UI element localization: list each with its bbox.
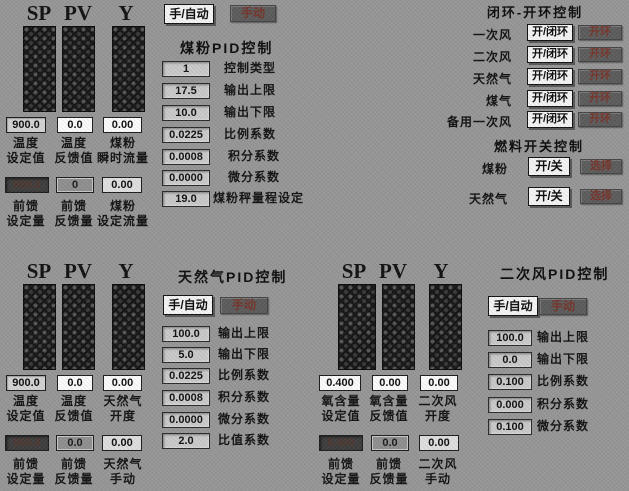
coal-pid-panel: 手/自动 手动 煤粉PID控制 1 控制类型 17.5 输出上限 10.0 输出… xyxy=(150,0,325,240)
coal-bars-panel: SP PV Y 900.0 0.0 0.00 温度 设定值 温度 反馈值 煤粉 … xyxy=(0,0,155,240)
sp-bar-graph xyxy=(23,284,56,370)
air-manual-button[interactable]: 手动 xyxy=(539,298,587,315)
hmi-screen: SP PV Y 900.0 0.0 0.00 温度 设定值 温度 反馈值 煤粉 … xyxy=(0,0,629,491)
gas-opening-field[interactable]: 0.00 xyxy=(103,375,142,391)
ratio-coeff-label: 比值系数 xyxy=(218,433,270,448)
y-bar-graph xyxy=(429,284,462,370)
derivative-coeff-label: 微分系数 xyxy=(228,170,280,185)
o2-bars-panel: SP PV Y 0.400 0.00 0.00 氧含量 设定值 氧含量 反馈值 … xyxy=(315,258,470,491)
natural-gas-loop-toggle-button[interactable]: 开/闭环 xyxy=(527,68,573,85)
feedforward-setpoint-label: 前馈 设定量 xyxy=(315,457,367,487)
label-line: 手动 xyxy=(411,472,465,487)
feedforward-feedback-field[interactable]: 0.0 xyxy=(371,435,409,451)
label-line: 反馈量 xyxy=(50,472,98,487)
air-opening-label: 二次风 开度 xyxy=(411,394,465,424)
output-upper-limit-label: 输出上限 xyxy=(537,330,589,345)
label-line: 前馈 xyxy=(50,457,98,472)
integral-coeff-field[interactable]: 0.0008 xyxy=(162,390,210,406)
output-lower-limit-label: 输出下限 xyxy=(537,352,589,367)
gas-manual-field[interactable]: 0.00 xyxy=(102,435,142,451)
label-line: 设定量 xyxy=(315,472,367,487)
temp-feedback-label: 温度 反馈值 xyxy=(50,394,98,424)
pv-column-header: PV xyxy=(53,2,103,24)
temp-feedback-field[interactable]: 0.0 xyxy=(57,375,93,391)
derivative-coeff-field[interactable]: 0.0000 xyxy=(162,412,210,428)
temp-setpoint-label: 温度 设定值 xyxy=(0,136,52,166)
pv-bar-graph xyxy=(62,284,95,370)
feedforward-feedback-label: 前馈 反馈量 xyxy=(365,457,413,487)
ratio-coeff-field[interactable]: 2.0 xyxy=(162,433,210,449)
air-manual-label: 二次风 手动 xyxy=(411,457,465,487)
coal-manual-button[interactable]: 手动 xyxy=(230,5,276,22)
derivative-coeff-field[interactable]: 0.0000 xyxy=(162,170,210,186)
label-line: 设定值 xyxy=(0,151,52,166)
label-line: 前馈 xyxy=(0,199,52,214)
secondary-air-loop-toggle-button[interactable]: 开/闭环 xyxy=(527,46,573,63)
label-line: 前馈 xyxy=(315,457,367,472)
temp-setpoint-field[interactable]: 900.0 xyxy=(6,117,46,133)
loop-row-label-primary-air: 一次风 xyxy=(440,26,512,43)
integral-coeff-label: 积分系数 xyxy=(228,149,280,164)
primary-air-open-loop-button[interactable]: 开环 xyxy=(578,25,622,40)
proportional-coeff-label: 比例系数 xyxy=(218,368,270,383)
label-line: 开度 xyxy=(94,409,152,424)
integral-coeff-field[interactable]: 0.000 xyxy=(488,397,532,413)
gas-pid-title: 天然气PID控制 xyxy=(178,267,287,287)
label-line: 温度 xyxy=(50,136,98,151)
sp-bar-graph xyxy=(23,26,56,112)
label-line: 反馈量 xyxy=(365,472,413,487)
coal-scale-range-label: 煤粉秤量程设定 xyxy=(213,191,304,206)
loop-row-label-secondary-air: 二次风 xyxy=(440,48,512,65)
feedforward-setpoint-label: 前馈 设定量 xyxy=(0,199,52,229)
label-line: 瞬时流量 xyxy=(94,151,152,166)
proportional-coeff-field[interactable]: 0.100 xyxy=(488,374,532,390)
derivative-coeff-label: 微分系数 xyxy=(218,412,270,427)
label-line: 设定流量 xyxy=(94,214,152,229)
gas-pid-panel: 天然气PID控制 手/自动 手动 100.0 输出上限 5.0 输出下限 0.0… xyxy=(150,255,325,491)
integral-coeff-label: 积分系数 xyxy=(537,397,589,412)
proportional-coeff-field[interactable]: 0.0225 xyxy=(162,368,210,384)
o2-feedback-label: 氧含量 反馈值 xyxy=(365,394,413,424)
natural-gas-on-off-button[interactable]: 开/关 xyxy=(528,187,570,206)
label-line: 温度 xyxy=(50,394,98,409)
feedforward-feedback-label: 前馈 反馈量 xyxy=(50,199,98,229)
label-line: 反馈量 xyxy=(50,214,98,229)
coal-setflow-label: 煤粉 设定流量 xyxy=(94,199,152,229)
pv-bar-graph xyxy=(62,26,95,112)
o2-setpoint-field[interactable]: 0.400 xyxy=(319,375,361,391)
pv-column-header: PV xyxy=(53,260,103,282)
proportional-coeff-label: 比例系数 xyxy=(224,127,276,142)
label-line: 前馈 xyxy=(0,457,52,472)
temp-setpoint-label: 温度 设定值 xyxy=(0,394,52,424)
fuel-switch-panel: 燃料开关控制 煤粉 开/关 选择 天然气 开/关 选择 xyxy=(440,135,629,215)
label-line: 二次风 xyxy=(411,394,465,409)
gas-opening-label: 天然气 开度 xyxy=(94,394,152,424)
label-line: 反馈值 xyxy=(50,151,98,166)
primary-air-loop-toggle-button[interactable]: 开/闭环 xyxy=(527,24,573,41)
y-bar-graph xyxy=(112,284,145,370)
temp-setpoint-field[interactable]: 900.0 xyxy=(6,375,46,391)
label-line: 反馈值 xyxy=(50,409,98,424)
loop-row-label-natural-gas: 天然气 xyxy=(440,70,512,87)
output-upper-limit-label: 输出上限 xyxy=(224,83,276,98)
feedforward-setpoint-label: 前馈 设定量 xyxy=(0,457,52,487)
y-column-header: Y xyxy=(415,260,467,282)
coal-pid-title: 煤粉PID控制 xyxy=(180,38,273,58)
loop-row-label-coal-gas: 煤气 xyxy=(440,92,512,109)
o2-feedback-field[interactable]: 0.00 xyxy=(372,375,408,391)
y-column-header: Y xyxy=(100,260,152,282)
proportional-coeff-label: 比例系数 xyxy=(537,374,589,389)
feedforward-setpoint-field[interactable]: 900.0 xyxy=(5,177,49,193)
coal-gas-loop-toggle-button[interactable]: 开/闭环 xyxy=(527,90,573,107)
loop-row-label-backup-primary-air: 备用一次风 xyxy=(440,113,512,130)
label-line: 温度 xyxy=(0,136,52,151)
integral-coeff-label: 积分系数 xyxy=(218,390,270,405)
coal-flow-label: 煤粉 瞬时流量 xyxy=(94,136,152,166)
label-line: 设定量 xyxy=(0,472,52,487)
sp-bar-graph xyxy=(338,284,376,370)
label-line: 设定量 xyxy=(0,214,52,229)
feedforward-feedback-label: 前馈 反馈量 xyxy=(50,457,98,487)
gas-bars-panel: SP PV Y 900.0 0.0 0.00 温度 设定值 温度 反馈值 天然气… xyxy=(0,258,155,491)
feedforward-setpoint-field[interactable]: 0.400 xyxy=(319,435,363,451)
air-pid-panel: 二次风PID控制 手/自动 手动 100.0 输出上限 0.0 输出下限 0.1… xyxy=(475,255,629,491)
backup-primary-air-loop-toggle-button[interactable]: 开/闭环 xyxy=(527,111,573,128)
label-line: 天然气 xyxy=(94,394,152,409)
label-line: 前馈 xyxy=(365,457,413,472)
label-line: 反馈值 xyxy=(365,409,413,424)
coal-select-button[interactable]: 选择 xyxy=(580,159,622,174)
label-line: 手动 xyxy=(94,472,152,487)
y-column-header: Y xyxy=(100,2,152,24)
loop-control-panel: 闭环-开环控制 一次风 开/闭环 开环 二次风 开/闭环 开环 天然气 开/闭环… xyxy=(440,0,629,133)
natural-gas-open-loop-button[interactable]: 开环 xyxy=(578,69,622,84)
output-lower-limit-field[interactable]: 10.0 xyxy=(162,105,210,121)
label-line: 设定值 xyxy=(315,409,367,424)
coal-scale-range-field[interactable]: 19.0 xyxy=(162,191,210,207)
output-upper-limit-field[interactable]: 17.5 xyxy=(162,83,210,99)
pv-column-header: PV xyxy=(368,260,418,282)
label-line: 氧含量 xyxy=(365,394,413,409)
label-line: 前馈 xyxy=(50,199,98,214)
secondary-air-open-loop-button[interactable]: 开环 xyxy=(578,47,622,62)
air-opening-field[interactable]: 0.00 xyxy=(420,375,458,391)
feedforward-setpoint-field[interactable]: 900.0 xyxy=(5,435,49,451)
coal-flow-field[interactable]: 0.00 xyxy=(103,117,142,133)
control-type-label: 控制类型 xyxy=(224,61,276,76)
o2-setpoint-label: 氧含量 设定值 xyxy=(315,394,367,424)
output-lower-limit-label: 输出下限 xyxy=(218,347,270,362)
label-line: 设定值 xyxy=(0,409,52,424)
pv-bar-graph xyxy=(382,284,415,370)
label-line: 开度 xyxy=(411,409,465,424)
coal-setflow-field[interactable]: 0.00 xyxy=(102,177,142,193)
derivative-coeff-field[interactable]: 0.100 xyxy=(488,419,532,435)
coal-auto-manual-button[interactable]: 手/自动 xyxy=(164,4,214,24)
gas-auto-manual-button[interactable]: 手/自动 xyxy=(163,295,213,315)
y-bar-graph xyxy=(112,26,145,112)
temp-feedback-field[interactable]: 0.0 xyxy=(57,117,93,133)
output-upper-limit-label: 输出上限 xyxy=(218,326,270,341)
output-lower-limit-field[interactable]: 0.0 xyxy=(488,352,532,368)
gas-manual-label: 天然气 手动 xyxy=(94,457,152,487)
loop-control-title: 闭环-开环控制 xyxy=(470,2,600,21)
output-upper-limit-field[interactable]: 100.0 xyxy=(488,330,532,346)
output-lower-limit-label: 输出下限 xyxy=(224,105,276,120)
fuel-switch-title: 燃料开关控制 xyxy=(474,136,604,155)
output-lower-limit-field[interactable]: 5.0 xyxy=(162,347,210,363)
label-line: 氧含量 xyxy=(315,394,367,409)
temp-feedback-label: 温度 反馈值 xyxy=(50,136,98,166)
air-manual-field[interactable]: 0.00 xyxy=(419,435,459,451)
coal-gas-open-loop-button[interactable]: 开环 xyxy=(578,91,622,106)
gas-manual-button[interactable]: 手动 xyxy=(220,297,268,314)
label-line: 天然气 xyxy=(94,457,152,472)
coal-on-off-button[interactable]: 开/关 xyxy=(528,157,570,176)
label-line: 温度 xyxy=(0,394,52,409)
integral-coeff-field[interactable]: 0.0008 xyxy=(162,149,210,165)
label-line: 煤粉 xyxy=(94,136,152,151)
output-upper-limit-field[interactable]: 100.0 xyxy=(162,326,210,342)
air-pid-title: 二次风PID控制 xyxy=(500,264,609,284)
label-line: 煤粉 xyxy=(94,199,152,214)
feedforward-feedback-field[interactable]: 0.0 xyxy=(56,435,94,451)
air-auto-manual-button[interactable]: 手/自动 xyxy=(488,296,538,316)
label-line: 二次风 xyxy=(411,457,465,472)
natural-gas-select-button[interactable]: 选择 xyxy=(580,189,622,204)
fuel-row-label-natural-gas: 天然气 xyxy=(440,190,508,207)
feedforward-feedback-field[interactable]: 0 xyxy=(56,177,94,193)
backup-primary-air-open-loop-button[interactable]: 开环 xyxy=(578,112,622,127)
derivative-coeff-label: 微分系数 xyxy=(537,419,589,434)
fuel-row-label-coal: 煤粉 xyxy=(440,160,508,177)
proportional-coeff-field[interactable]: 0.0225 xyxy=(162,127,210,143)
control-type-field[interactable]: 1 xyxy=(162,61,210,77)
